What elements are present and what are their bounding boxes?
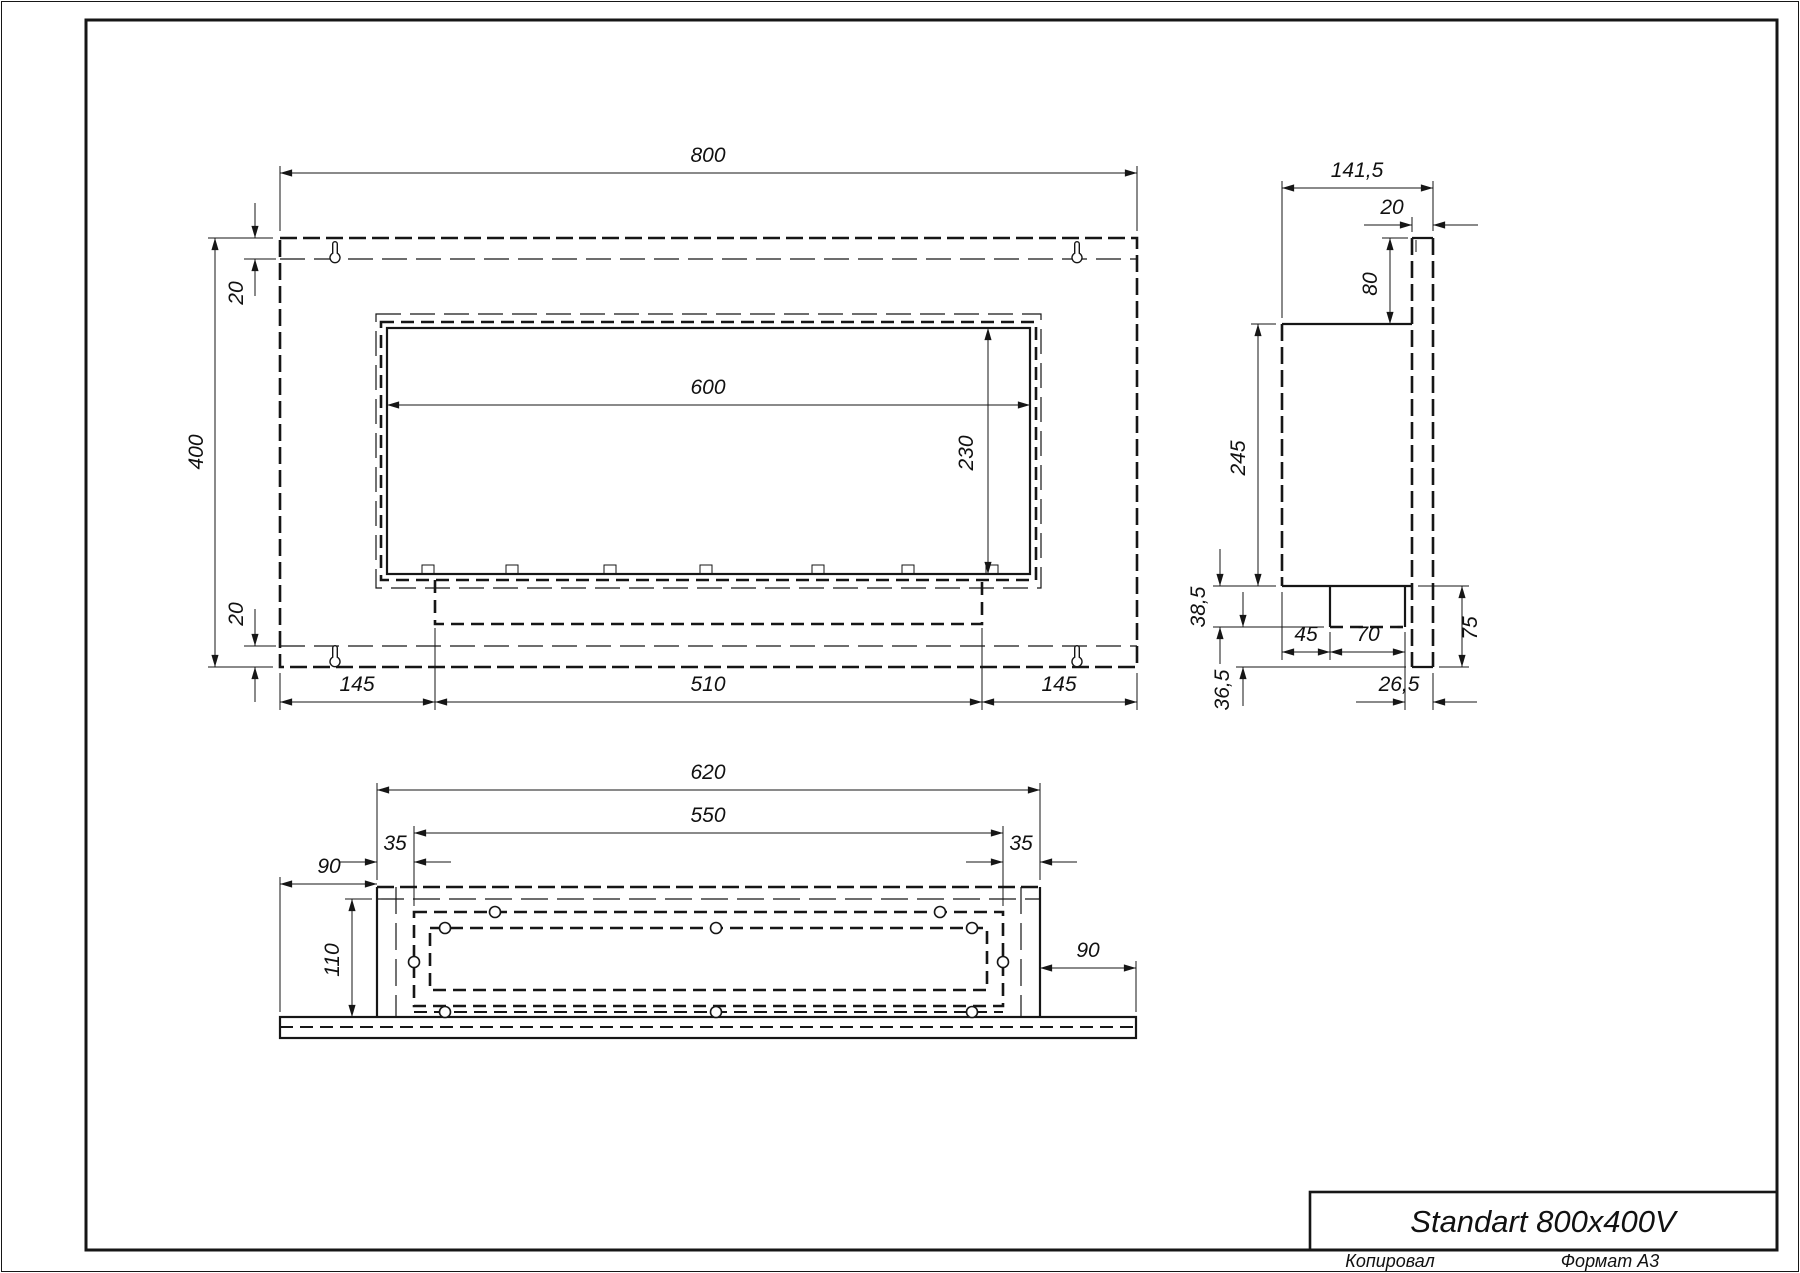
screw-hole — [967, 1007, 978, 1018]
front-view: 800 400 20 20 600 230 — [185, 144, 1137, 710]
dim-label-26-5: 26,5 — [1378, 673, 1420, 696]
title-text: Standart 800x400V — [1410, 1204, 1679, 1239]
dim-label-35-right: 35 — [1009, 832, 1033, 855]
screw-hole — [440, 923, 451, 934]
screw-hole — [998, 957, 1009, 968]
dim-label-20-bottom: 20 — [225, 602, 248, 627]
side-view: 141,5 20 80 245 38,5 36,5 — [1187, 159, 1482, 710]
dim-label-90-right: 90 — [1076, 939, 1100, 962]
screw-hole — [935, 907, 946, 918]
dim-label-110: 110 — [321, 943, 344, 977]
dim-label-620: 620 — [690, 761, 725, 784]
screw-hole — [440, 1007, 451, 1018]
keyhole-icon — [330, 646, 340, 667]
dim-label-35-left: 35 — [383, 832, 407, 855]
tray-hidden-outline — [435, 580, 982, 624]
dim-label-400: 400 — [185, 434, 208, 469]
dim-label-20-plate: 20 — [1379, 196, 1404, 219]
screw-holes — [409, 907, 1009, 1018]
opening-heavy-dash-frame — [381, 322, 1036, 580]
keyhole-icon — [1072, 646, 1082, 667]
page-border — [2, 2, 1799, 1272]
drawing-frame — [86, 20, 1777, 1250]
dim-label-145-left: 145 — [339, 673, 374, 696]
dim-label-20-top: 20 — [225, 281, 248, 306]
keyhole-icon — [330, 242, 340, 263]
title-block: Standart 800x400V Копировал Формат А3 — [1310, 1192, 1777, 1271]
dim-label-230: 230 — [955, 435, 978, 471]
dim-label-90-left: 90 — [317, 855, 341, 878]
bottom-dimensions: 620 550 35 35 90 90 110 — [280, 761, 1136, 1017]
dim-label-80: 80 — [1359, 272, 1382, 296]
technical-drawing: 800 400 20 20 600 230 — [0, 0, 1800, 1273]
screw-hole — [711, 923, 722, 934]
dim-label-510: 510 — [690, 673, 725, 696]
screw-hole — [409, 957, 420, 968]
tray-inner-hidden — [430, 928, 987, 990]
dim-label-36-5: 36,5 — [1211, 669, 1234, 710]
screw-hole — [490, 907, 501, 918]
front-outer-outline — [280, 238, 1137, 667]
dim-label-70: 70 — [1356, 623, 1380, 646]
dim-label-145-right: 145 — [1041, 673, 1076, 696]
dim-label-45: 45 — [1294, 623, 1318, 646]
dim-label-141-5: 141,5 — [1331, 159, 1384, 182]
dim-label-245: 245 — [1227, 440, 1250, 476]
opening-outer-dash-frame — [376, 314, 1041, 588]
opening-edge — [387, 328, 1030, 574]
footer-format-label: Формат А3 — [1561, 1251, 1660, 1271]
screw-hole — [711, 1007, 722, 1018]
glass-clips — [422, 565, 998, 574]
dim-label-38-5: 38,5 — [1187, 586, 1210, 627]
bottom-view: 620 550 35 35 90 90 110 — [280, 761, 1136, 1038]
keyhole-icon — [1072, 242, 1082, 263]
drawing-sheet: 800 400 20 20 600 230 — [0, 0, 1800, 1273]
footer-copied-label: Копировал — [1345, 1251, 1435, 1271]
dim-label-800: 800 — [690, 144, 725, 167]
tray-outer-hidden — [414, 912, 1003, 1006]
dim-label-75: 75 — [1459, 616, 1482, 640]
dim-label-550: 550 — [690, 804, 725, 827]
screw-hole — [967, 923, 978, 934]
dim-label-600: 600 — [690, 376, 725, 399]
